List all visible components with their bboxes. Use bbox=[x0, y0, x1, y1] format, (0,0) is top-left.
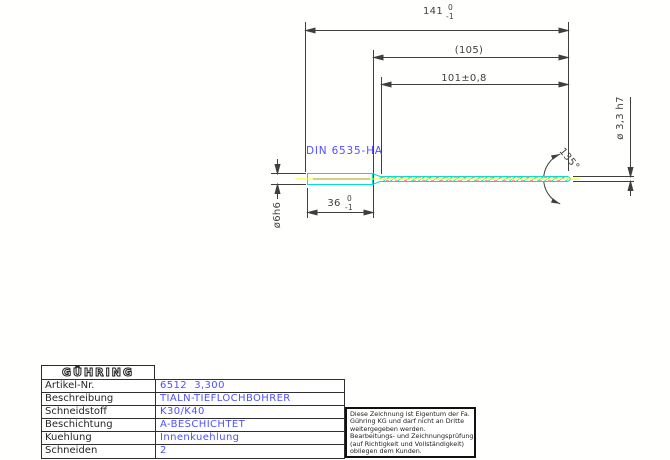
table-value-beschreibung: TIALN-TIEFLOCHBOHRER bbox=[156, 393, 344, 405]
dim-overall-tol-lower: -1 bbox=[446, 12, 454, 21]
table-label-artikel-nr: Artikel-Nr. bbox=[42, 380, 156, 392]
table-row-beschreibung: Beschreibung TIALN-TIEFLOCHBOHRER bbox=[42, 393, 344, 406]
dim-shank-length-value: 36 bbox=[327, 198, 340, 209]
ownership-disclaimer-box: Diese Zeichnung ist Eigentum der Fa. Güh… bbox=[345, 407, 476, 458]
table-row-artikel-nr: Artikel-Nr. 6512 3,300 bbox=[42, 380, 344, 393]
table-row-schneidstoff: Schneidstoff K30/K40 bbox=[42, 406, 344, 419]
dim-shank-length-tol-lower: -1 bbox=[345, 203, 353, 212]
table-label-schneiden: Schneiden bbox=[42, 445, 156, 458]
table-label-beschreibung: Beschreibung bbox=[42, 393, 156, 405]
dim-tip-diameter-value: ø 3,3 h7 bbox=[615, 96, 626, 139]
din-standard-label: DIN 6535-HA bbox=[306, 145, 383, 157]
drill-body bbox=[296, 173, 580, 185]
title-block-table: Artikel-Nr. 6512 3,300 Beschreibung TIAL… bbox=[41, 379, 345, 459]
table-value-beschichtung: A-BESCHICHTET bbox=[156, 419, 344, 431]
cad-drawing-canvas: 141 0 -1 (105) 101±0,8 ø 3,3 h7 bbox=[0, 0, 670, 460]
manufacturer-logo: GÜHRING bbox=[62, 366, 134, 379]
dim-overall-tol-upper: 0 bbox=[448, 3, 453, 12]
table-label-schneidstoff: Schneidstoff bbox=[42, 406, 156, 418]
table-value-kuehlung: Innenkuehlung bbox=[156, 432, 344, 444]
manufacturer-logo-box: GÜHRING bbox=[41, 365, 155, 380]
dim-overall-value: 141 bbox=[423, 6, 443, 17]
table-row-kuehlung: Kuehlung Innenkuehlung bbox=[42, 432, 344, 445]
dimension-flute-length bbox=[382, 77, 569, 174]
dim-shank-length-tol-upper: 0 bbox=[347, 194, 352, 203]
dim-reference-value: (105) bbox=[455, 45, 483, 56]
table-row-schneiden: Schneiden 2 bbox=[42, 445, 344, 458]
table-value-artikel-nr: 6512 3,300 bbox=[156, 380, 344, 392]
table-value-schneiden: 2 bbox=[156, 445, 344, 458]
table-row-beschichtung: Beschichtung A-BESCHICHTET bbox=[42, 419, 344, 432]
disclaimer-line: obliegen dem Kunden. bbox=[350, 448, 471, 455]
table-value-schneidstoff: K30/K40 bbox=[156, 406, 344, 418]
dim-flute-length-value: 101±0,8 bbox=[441, 73, 486, 84]
drill-drawing: 141 0 -1 (105) 101±0,8 ø 3,3 h7 bbox=[0, 0, 670, 330]
table-label-beschichtung: Beschichtung bbox=[42, 419, 156, 431]
dim-shank-diameter-value: ø6h6 bbox=[272, 202, 283, 228]
table-label-kuehlung: Kuehlung bbox=[42, 432, 156, 444]
